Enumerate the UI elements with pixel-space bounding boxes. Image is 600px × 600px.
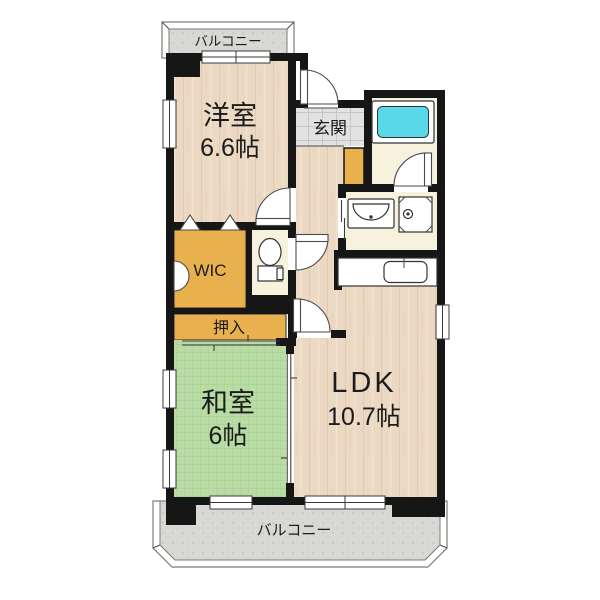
wall-segment — [174, 308, 250, 314]
window-western-top — [202, 51, 270, 63]
wall-segment — [286, 338, 294, 354]
toilet-icon — [258, 239, 283, 282]
japanese-room-size: 6帖 — [209, 422, 248, 450]
wall-segment — [364, 90, 445, 98]
bathtub-water — [378, 107, 429, 138]
pan-drain — [406, 212, 409, 215]
wall-segment — [437, 90, 445, 505]
wic-label: WIC — [193, 261, 226, 280]
wall-segment — [246, 295, 296, 314]
wall-segment — [286, 483, 294, 497]
window-japanese-left-1 — [163, 370, 176, 408]
bathroom-door-leaf — [425, 153, 432, 186]
balcony-partition-wall — [392, 505, 445, 517]
western-room-door-leaf — [256, 219, 290, 226]
entrance-door-leaf — [301, 70, 308, 104]
window-ldk-right — [436, 305, 449, 339]
floor-plan: バルコニー バルコニー — [0, 0, 600, 600]
window-japanese-balcony — [210, 496, 252, 509]
wall-segment — [364, 98, 372, 186]
balcony-partition-wall — [166, 505, 196, 525]
japanese-room-floor — [174, 340, 286, 497]
ldk-door-leaf — [294, 299, 301, 332]
window-japanese-left-2 — [163, 450, 176, 488]
window-western-left — [163, 100, 176, 148]
oshiire-label: 押入 — [213, 319, 245, 337]
wash-basin-icon — [348, 199, 394, 228]
basin-drain — [369, 215, 372, 218]
japanese-room-label: 和室 — [201, 388, 255, 418]
wall-segment — [338, 250, 437, 258]
genkan-label: 玄関 — [313, 119, 347, 138]
wall-segment — [288, 61, 296, 188]
shoe-cabinet — [344, 148, 364, 186]
wall-segment — [331, 330, 346, 338]
washing-machine-pan-icon — [399, 197, 432, 232]
wall-segment — [338, 184, 346, 198]
balcony-bottom-label: バルコニー — [257, 522, 332, 539]
ldk-size: 10.7帖 — [327, 403, 401, 431]
toilet-door-leaf — [296, 235, 328, 242]
western-room-size: 6.6帖 — [200, 134, 260, 162]
ldk-label: LDK — [331, 367, 396, 399]
western-room-label: 洋室 — [203, 101, 257, 131]
bathtub-icon — [372, 101, 434, 143]
window-ldk-balcony — [305, 496, 385, 509]
balcony-top-label: バルコニー — [194, 34, 261, 49]
wall-segment — [346, 184, 394, 192]
kitchen-sink-counter-icon — [338, 258, 437, 286]
